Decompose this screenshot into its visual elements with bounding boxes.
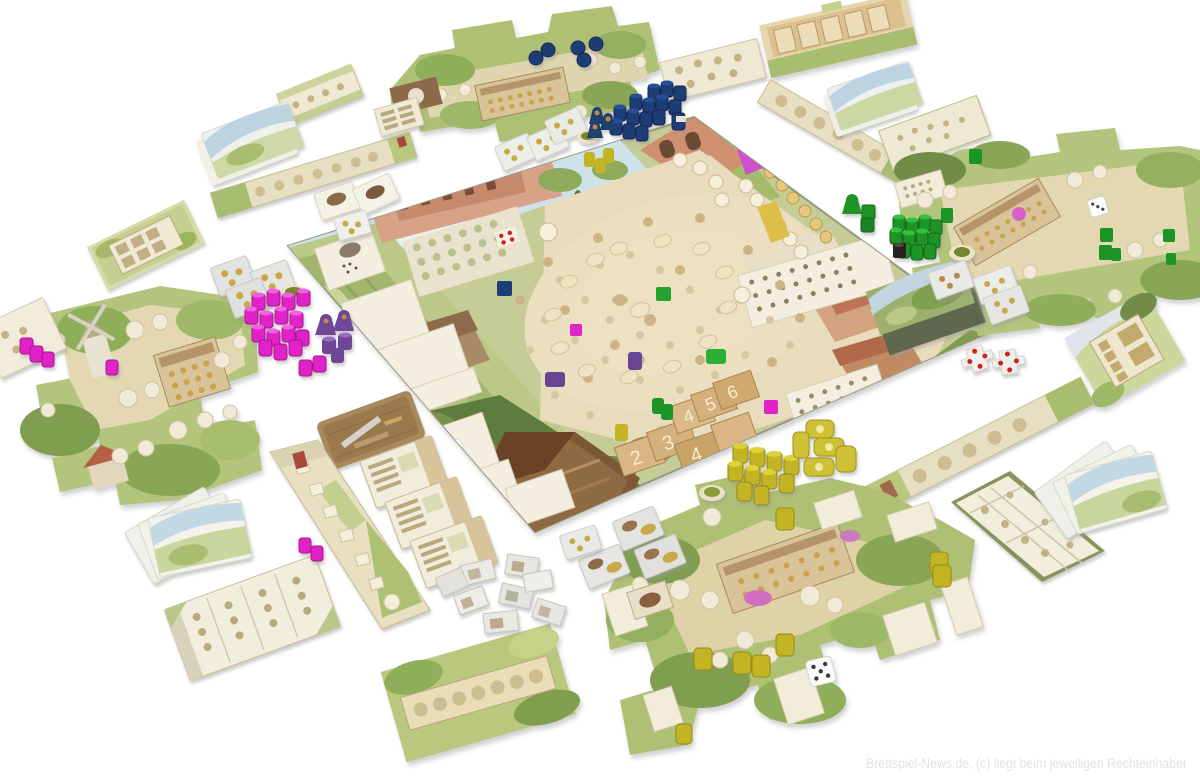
svg-text:Brettspiel-News.de, (c) liegt: Brettspiel-News.de, (c) liegt beim jewei… <box>866 756 1187 771</box>
